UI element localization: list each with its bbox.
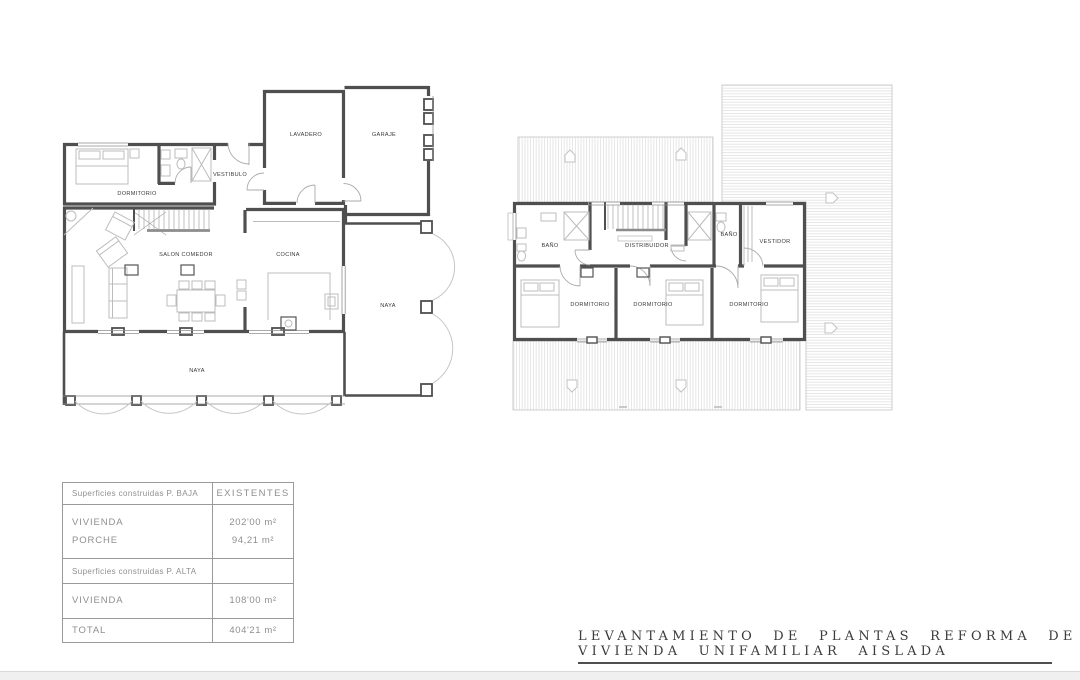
- drawing-title-line2: VIVIENDA UNIFAMILIAR AISLADA: [578, 644, 1077, 659]
- upper-floor-plan: BAÑO DISTRIBUIDOR BAÑO VESTIDOR DORMITOR…: [508, 85, 892, 410]
- ground-furniture-dark: [125, 265, 296, 330]
- value-vivienda-baja: 202'00 m²: [213, 514, 293, 532]
- roof-regions: [513, 85, 892, 410]
- room-label-dormitorio-3: DORMITORIO: [729, 302, 769, 308]
- ground-floor-plan: DORMITORIO VESTIBULO LAVADERO GARAJE SAL…: [63, 86, 455, 414]
- table-row-total: TOTAL 404'21 m²: [63, 619, 293, 642]
- label-vivienda-alta: VIVIENDA: [63, 584, 212, 618]
- value-porche: 94,21 m²: [213, 532, 293, 550]
- table-cell-existentes: EXISTENTES: [212, 483, 293, 504]
- areas-table: Superficies construidas P. BAJA EXISTENT…: [62, 482, 294, 643]
- upper-window-sill: [508, 213, 513, 240]
- room-label-vestibulo: VESTIBULO: [213, 172, 247, 178]
- ground-arches: [75, 234, 455, 414]
- table-row-baja-values: VIVIENDA PORCHE 202'00 m² 94,21 m²: [63, 505, 293, 559]
- room-label-bano-2: BAÑO: [720, 231, 737, 238]
- drawing-title-block: LEVANTAMIENTO DE PLANTAS REFORMA DE VIVI…: [578, 629, 1077, 664]
- title-underline: [578, 662, 1052, 664]
- table-cell-empty: [212, 559, 293, 583]
- room-label-cocina: COCINA: [276, 252, 300, 258]
- drawing-sheet: DORMITORIO VESTIBULO LAVADERO GARAJE SAL…: [0, 0, 1080, 679]
- table-cell-baja-labels: VIVIENDA PORCHE: [63, 505, 212, 558]
- value-vivienda-alta: 108'00 m²: [212, 584, 293, 618]
- label-total: TOTAL: [63, 619, 212, 642]
- room-label-bano-1: BAÑO: [541, 242, 558, 249]
- value-total: 404'21 m²: [212, 619, 293, 642]
- table-row-header-baja: Superficies construidas P. BAJA EXISTENT…: [63, 483, 293, 505]
- ground-doors: [175, 143, 361, 203]
- room-label-naya-lateral: NAYA: [380, 303, 396, 309]
- room-label-lavadero: LAVADERO: [290, 132, 322, 138]
- ground-stairs: [134, 208, 210, 235]
- drawing-title-line1: LEVANTAMIENTO DE PLANTAS REFORMA DE: [578, 629, 1077, 644]
- ground-furniture: [64, 148, 340, 327]
- room-label-dormitorio-1: DORMITORIO: [570, 302, 610, 308]
- ground-naya-walls: [64, 224, 422, 406]
- table-cell-baja-values: 202'00 m² 94,21 m²: [212, 505, 293, 558]
- ground-windows: [63, 96, 433, 404]
- room-label-garaje: GARAJE: [372, 132, 396, 138]
- upper-stairs: [608, 205, 666, 242]
- room-label-dormitorio-2: DORMITORIO: [633, 302, 673, 308]
- table-row-header-alta: Superficies construidas P. ALTA: [63, 559, 293, 584]
- table-cell-header-baja: Superficies construidas P. BAJA: [63, 483, 212, 504]
- room-label-naya-porche: NAYA: [189, 368, 205, 374]
- table-cell-header-alta: Superficies construidas P. ALTA: [63, 559, 212, 583]
- label-vivienda-baja: VIVIENDA: [72, 514, 212, 532]
- room-label-distribuidor: DISTRIBUIDOR: [625, 243, 669, 249]
- upper-walls: [513, 202, 806, 341]
- room-label-vestidor: VESTIDOR: [760, 239, 791, 245]
- room-label-dormitorio: DORMITORIO: [117, 191, 157, 197]
- label-porche: PORCHE: [72, 532, 212, 550]
- room-label-salon-comedor: SALON COMEDOR: [159, 252, 213, 258]
- table-row-alta-values: VIVIENDA 108'00 m²: [63, 584, 293, 619]
